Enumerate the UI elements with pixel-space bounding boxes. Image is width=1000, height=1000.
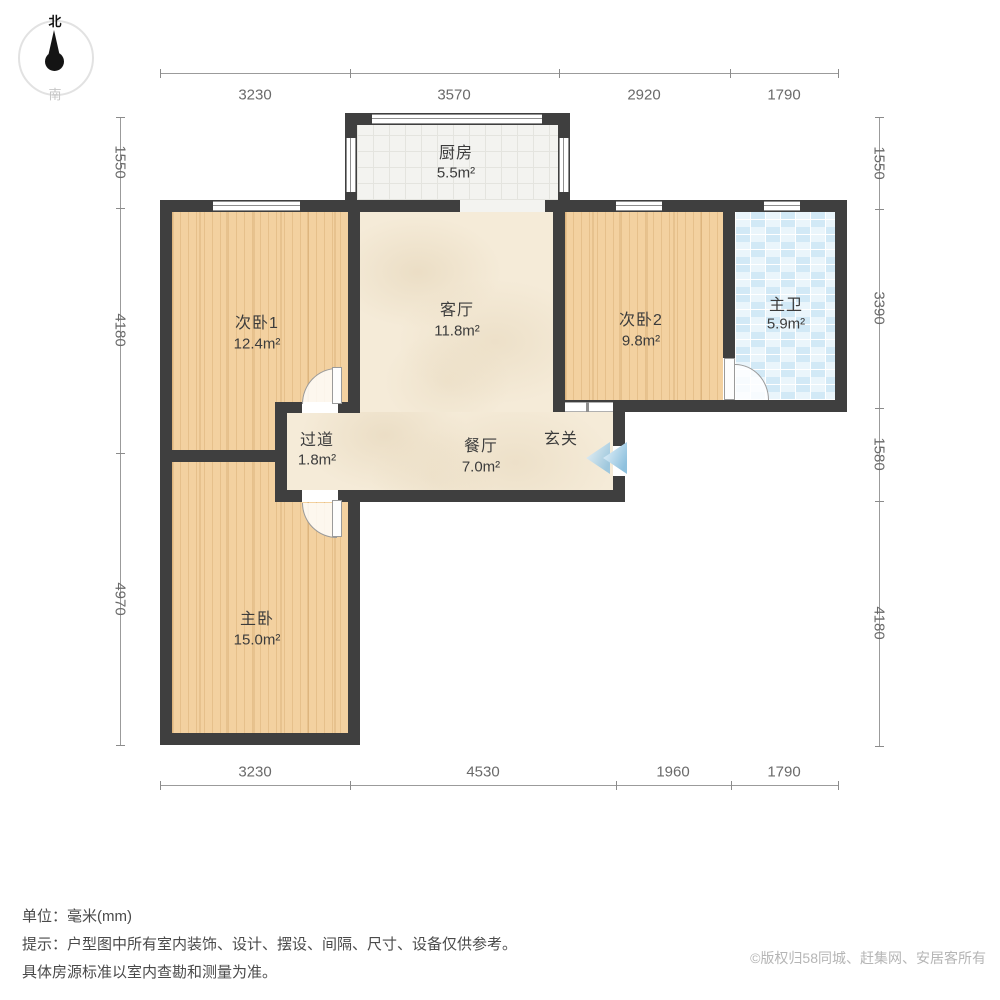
dimension-label-right-1: 1550 (871, 146, 888, 179)
bathroom-door-leaf (724, 358, 735, 400)
dimension-label-left-1: 1550 (112, 145, 129, 178)
dimension-label-top-3: 2920 (627, 87, 660, 104)
bedroom2-window (616, 201, 662, 211)
dim-tick (160, 69, 161, 78)
dim-tick (559, 69, 560, 78)
dim-tick (350, 69, 351, 78)
dimension-label-top-1: 3230 (238, 87, 271, 104)
wall-master-top (160, 450, 287, 462)
dimension-label-left-2: 4180 (112, 313, 129, 346)
wall-master-bottom (160, 733, 360, 745)
wall-left-outer (160, 200, 172, 745)
dimension-line-bottom (160, 785, 838, 786)
dining-label: 餐厅 (464, 432, 498, 456)
bathroom-label: 主卫 (769, 291, 803, 315)
dim-tick (730, 69, 731, 78)
kitchen-left-window (346, 138, 356, 192)
bathroom-window (764, 201, 800, 211)
dimension-label-top-4: 1790 (767, 87, 800, 104)
dimension-label-right-4: 4180 (871, 606, 888, 639)
kitchen-area: 5.5m² (437, 165, 475, 182)
bedroom1-window (213, 201, 300, 211)
dim-tick (838, 781, 839, 790)
tip-note-line1: 提示：户型图中所有室内装饰、设计、摆设、间隔、尺寸、设备仅供参考。 (22, 933, 517, 954)
dim-tick (116, 745, 125, 746)
tip-note-line2: 具体房源标准以室内查勘和测量为准。 (22, 961, 277, 982)
bedroom2-label: 次卧2 (619, 306, 663, 330)
wall-bedroom2-bathroom (723, 212, 735, 360)
dim-tick (616, 781, 617, 790)
dim-tick (350, 781, 351, 790)
dim-tick (875, 408, 884, 409)
hallway-area: 1.8m² (298, 452, 336, 469)
copyright-note: ©版权归58同城、赶集网、安居客所有 (750, 948, 986, 968)
bedroom2-area: 9.8m² (622, 333, 660, 350)
bedroom1-floor-lower (172, 402, 275, 450)
wall-living-right (553, 212, 565, 408)
kitchen-right-window (559, 138, 569, 192)
compass-north-label: 北 (48, 11, 61, 30)
entry-label: 玄关 (544, 425, 578, 449)
bedroom2-south-opening-divider (586, 402, 589, 412)
dimension-line-left (120, 117, 121, 745)
master-bedroom-area: 15.0m² (234, 632, 281, 649)
dim-tick (875, 209, 884, 210)
dimension-label-bottom-1: 3230 (238, 764, 271, 781)
dimension-line-top (160, 73, 838, 74)
dim-tick (875, 746, 884, 747)
bedroom2-south-opening (565, 402, 613, 412)
dim-tick (731, 781, 732, 790)
bedroom1-label: 次卧1 (235, 309, 279, 333)
unit-note: 单位：毫米(mm) (22, 905, 132, 926)
dim-tick (116, 208, 125, 209)
dim-tick (116, 453, 125, 454)
dim-tick (875, 117, 884, 118)
master-door-leaf (332, 500, 342, 537)
dimension-line-right (879, 117, 880, 746)
kitchen-passage-opening (460, 200, 545, 212)
dim-tick (160, 781, 161, 790)
compass-south-label: 南 (48, 84, 61, 103)
kitchen-label: 厨房 (439, 139, 473, 163)
master-bedroom-label: 主卧 (240, 605, 274, 629)
compass: 北 南 (8, 5, 98, 100)
kitchen-top-window (372, 114, 542, 124)
dining-area: 7.0m² (462, 459, 500, 476)
wall-master-right (348, 502, 360, 745)
hallway-label: 过道 (300, 426, 334, 450)
dim-tick (116, 117, 125, 118)
dimension-label-right-2: 3390 (871, 291, 888, 324)
dimension-label-bottom-2: 4530 (466, 764, 499, 781)
bedroom1-area: 12.4m² (234, 336, 281, 353)
floorplan-page: 北 南 厨房 5.5m² 次卧1 1 (0, 0, 1000, 1000)
wall-living-left (348, 212, 360, 408)
bedroom1-door-leaf (332, 367, 342, 404)
living-room-label: 客厅 (440, 296, 474, 320)
bathroom-area: 5.9m² (767, 316, 805, 333)
dimension-label-right-3: 1580 (871, 437, 888, 470)
wall-right-outer (835, 200, 847, 412)
living-room-area: 11.8m² (434, 323, 480, 340)
dimension-label-bottom-3: 1960 (656, 764, 689, 781)
dimension-label-bottom-4: 1790 (767, 764, 800, 781)
dim-tick (838, 69, 839, 78)
compass-needle-dot-icon (45, 52, 64, 71)
dim-tick (875, 501, 884, 502)
dimension-label-left-3: 4970 (112, 582, 129, 615)
dimension-label-top-2: 3570 (437, 87, 470, 104)
